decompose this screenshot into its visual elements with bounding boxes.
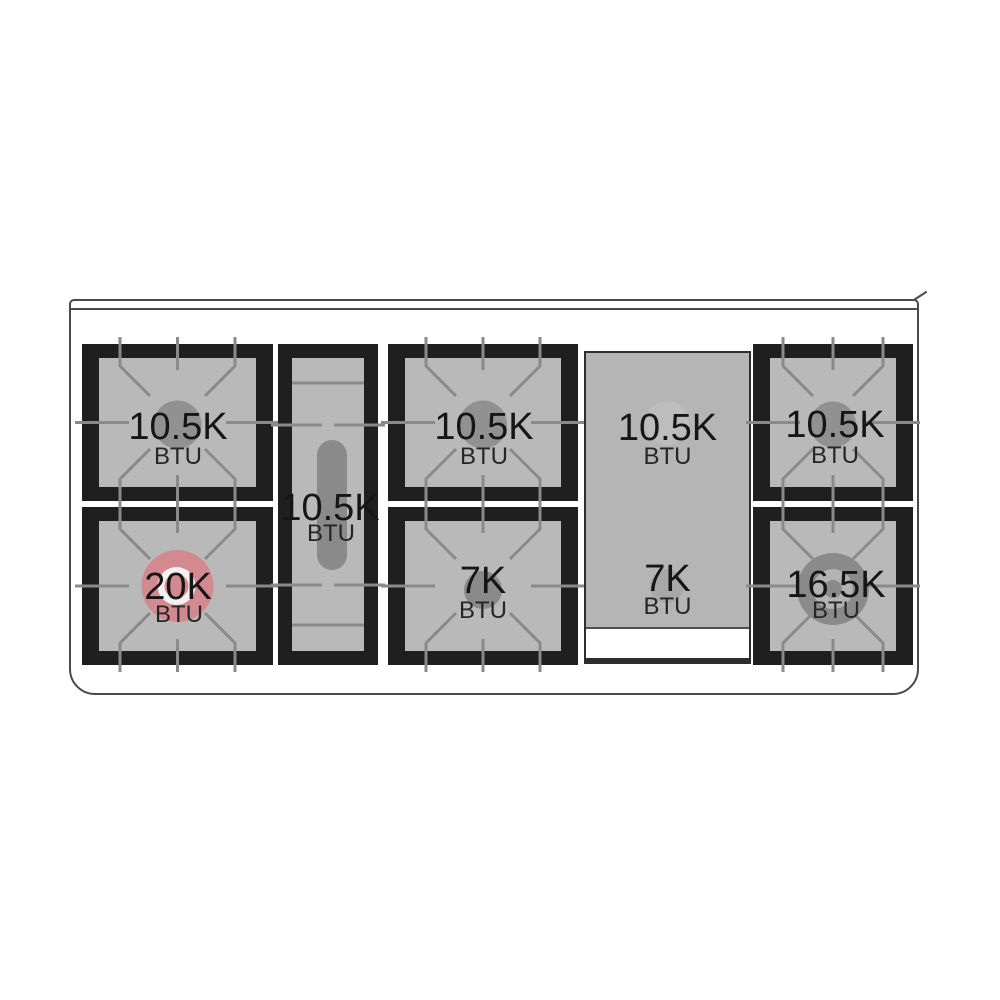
burner-btu-value: 10.5K xyxy=(128,408,227,446)
burner-btu-unit: BTU xyxy=(307,522,355,546)
burner-btu-value: 10.5K xyxy=(785,406,884,444)
griddle-section: 10.5K BTU 7K BTU xyxy=(584,351,751,664)
burner-btu-unit: BTU xyxy=(154,445,202,469)
burner-grate-left-rear: 10.5K BTU xyxy=(82,344,273,501)
range-top-panel: 10.5K BTU 20K BTU 10.5K BTU 10.5K BTU 7K… xyxy=(69,299,919,695)
burner-grate-right-rear: 10.5K BTU xyxy=(753,344,913,501)
panel-trim-line xyxy=(71,308,917,310)
burner-btu-unit: BTU xyxy=(460,445,508,469)
cooktop-diagram: 10.5K BTU 20K BTU 10.5K BTU 10.5K BTU 7K… xyxy=(0,0,1000,1000)
burner-btu-value: 10.5K xyxy=(434,408,533,446)
burner-btu-unit: BTU xyxy=(644,595,692,619)
burner-btu-unit: BTU xyxy=(459,599,507,623)
burner-grate-left-front-highlighted: 20K BTU xyxy=(82,507,273,665)
burner-btu-unit: BTU xyxy=(812,599,860,623)
burner-btu-unit: BTU xyxy=(155,603,203,627)
burner-btu-value: 7K xyxy=(460,562,506,600)
burner-grate-right-front: 16.5K BTU xyxy=(753,507,913,665)
burner-btu-unit: BTU xyxy=(811,444,859,468)
burner-grate-center-oval: 10.5K BTU xyxy=(278,344,378,665)
burner-btu-value: 10.5K xyxy=(618,409,717,447)
panel-corner-edge xyxy=(913,291,928,301)
burner-btu-unit: BTU xyxy=(644,445,692,469)
burner-grate-middle-front: 7K BTU xyxy=(388,507,578,665)
burner-grate-middle-rear: 10.5K BTU xyxy=(388,344,578,501)
griddle-label-strip xyxy=(586,627,749,658)
